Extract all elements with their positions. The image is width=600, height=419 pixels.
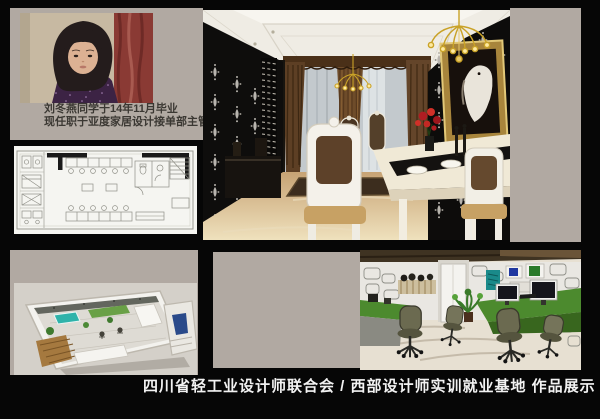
footer-caption: 四川省轻工业设计师联合会 / 西部设计师实训就业基地 作品展示 [143,375,596,396]
dining-room-image [203,10,510,240]
floor-plan-image [14,146,197,234]
mid-spacer-panel [213,252,360,368]
portrait-photo [20,13,153,103]
portfolio-board: 刘冬燕同学于14年11月毕业 现任职于亚度家居设计接单部主管 [0,0,600,419]
office-render-image [360,250,581,370]
horse-painting [440,40,507,143]
isometric-render-image [14,283,197,375]
profile-line1: 刘冬燕同学于14年11月毕业 [44,103,204,116]
right-spacer-panel [510,8,581,242]
white-chair-center [304,117,366,240]
profile-line2: 现任职于亚度家居设计接单部主管 [44,116,204,129]
profile-caption: 刘冬燕同学于14年11月毕业 现任职于亚度家居设计接单部主管 [44,103,204,129]
